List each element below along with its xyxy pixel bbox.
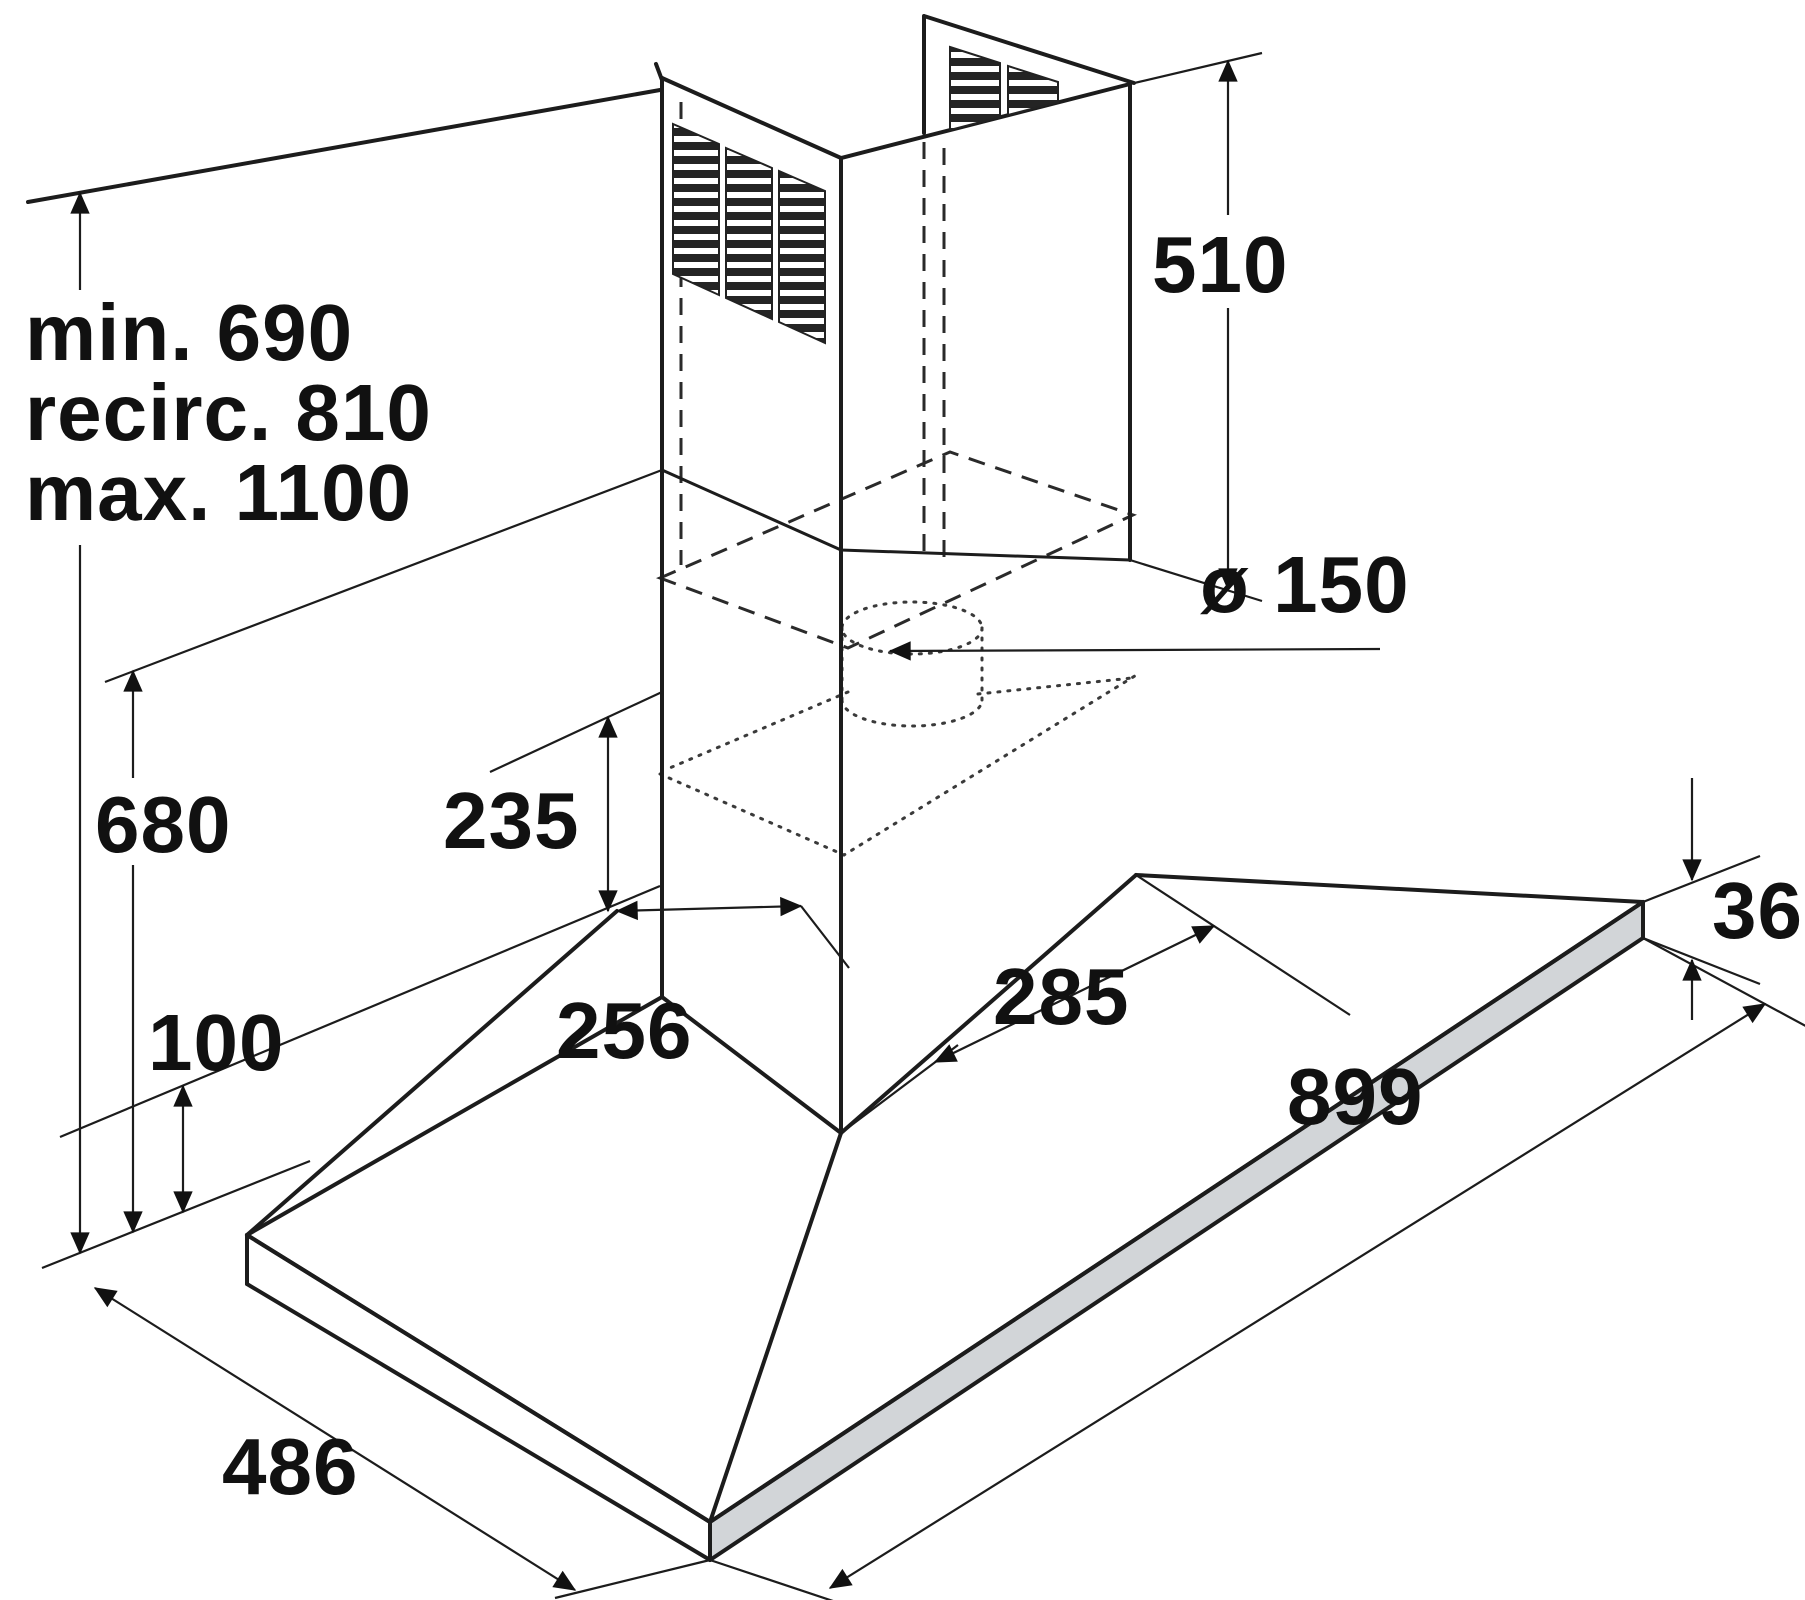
wall-top-edge [28, 90, 660, 202]
ext-285-right [1136, 875, 1350, 1015]
label-height-max: max. 1100 [25, 448, 412, 537]
label-base-thickness: 36 [1712, 866, 1803, 955]
vent-panel-1 [673, 124, 719, 295]
dimension-height-minmax: min. 690 recirc. 810 max. 1100 [25, 193, 432, 1253]
label-rear-offset: 100 [148, 998, 284, 1087]
hidden-funnel-edge [660, 674, 1138, 855]
leader-line-duct [890, 649, 1380, 651]
dimension-680: 680 [95, 671, 231, 1232]
canopy-ridge-right [1136, 875, 1643, 902]
duct-cylinder-bottom [842, 700, 982, 726]
vent-panel-5 [1008, 66, 1058, 115]
ext-486-right [555, 1560, 710, 1598]
dimension-899: 899 [830, 1004, 1765, 1588]
hidden-hood-top-rim [660, 452, 1133, 648]
dimension-510: 510 [1152, 61, 1288, 589]
wall [28, 64, 662, 202]
base-plate-corner-edges [247, 902, 1643, 1560]
vent-panel-2 [726, 148, 772, 319]
label-canopy-height: 235 [443, 776, 579, 865]
base-plate-front-right-face [710, 902, 1643, 1560]
dimension-duct-diameter: ø 150 [890, 540, 1410, 651]
base-plate-front-left-face [247, 1235, 710, 1560]
duct-cylinder-top [842, 602, 982, 654]
chimney-section-joint [662, 470, 1130, 560]
label-height-min: min. 690 [25, 288, 353, 377]
label-canopy-depth: 256 [556, 986, 692, 1075]
label-canopy-width: 285 [993, 952, 1129, 1041]
dimension-285: 285 [935, 926, 1214, 1062]
dim-line-256 [617, 906, 801, 911]
label-height-recirc: recirc. 810 [25, 368, 432, 457]
label-base-width: 899 [1287, 1052, 1423, 1141]
dimension-235: 235 [443, 717, 608, 911]
label-chimney-upper-height: 510 [1152, 220, 1288, 309]
duct-outlet [660, 602, 1138, 855]
label-base-depth: 486 [222, 1422, 358, 1511]
dimension-diagram: min. 690 recirc. 810 max. 1100 680 100 2… [0, 0, 1805, 1600]
ext-510-top [1130, 53, 1262, 84]
vent-panel-4 [950, 47, 1000, 130]
ext-hood-top-level [490, 692, 662, 772]
duct-connector-left [665, 692, 848, 770]
chimney-top-edges [662, 78, 1130, 158]
vent-grille-left [673, 124, 825, 343]
ext-899-left [710, 1560, 845, 1600]
vent-panel-3 [779, 171, 825, 343]
dimension-36: 36 [1692, 778, 1803, 1020]
label-duct-diameter: ø 150 [1200, 540, 1410, 629]
base-plate [247, 902, 1643, 1560]
label-body-height: 680 [95, 780, 231, 869]
hood-diagram-canvas: min. 690 recirc. 810 max. 1100 680 100 2… [0, 0, 1805, 1600]
